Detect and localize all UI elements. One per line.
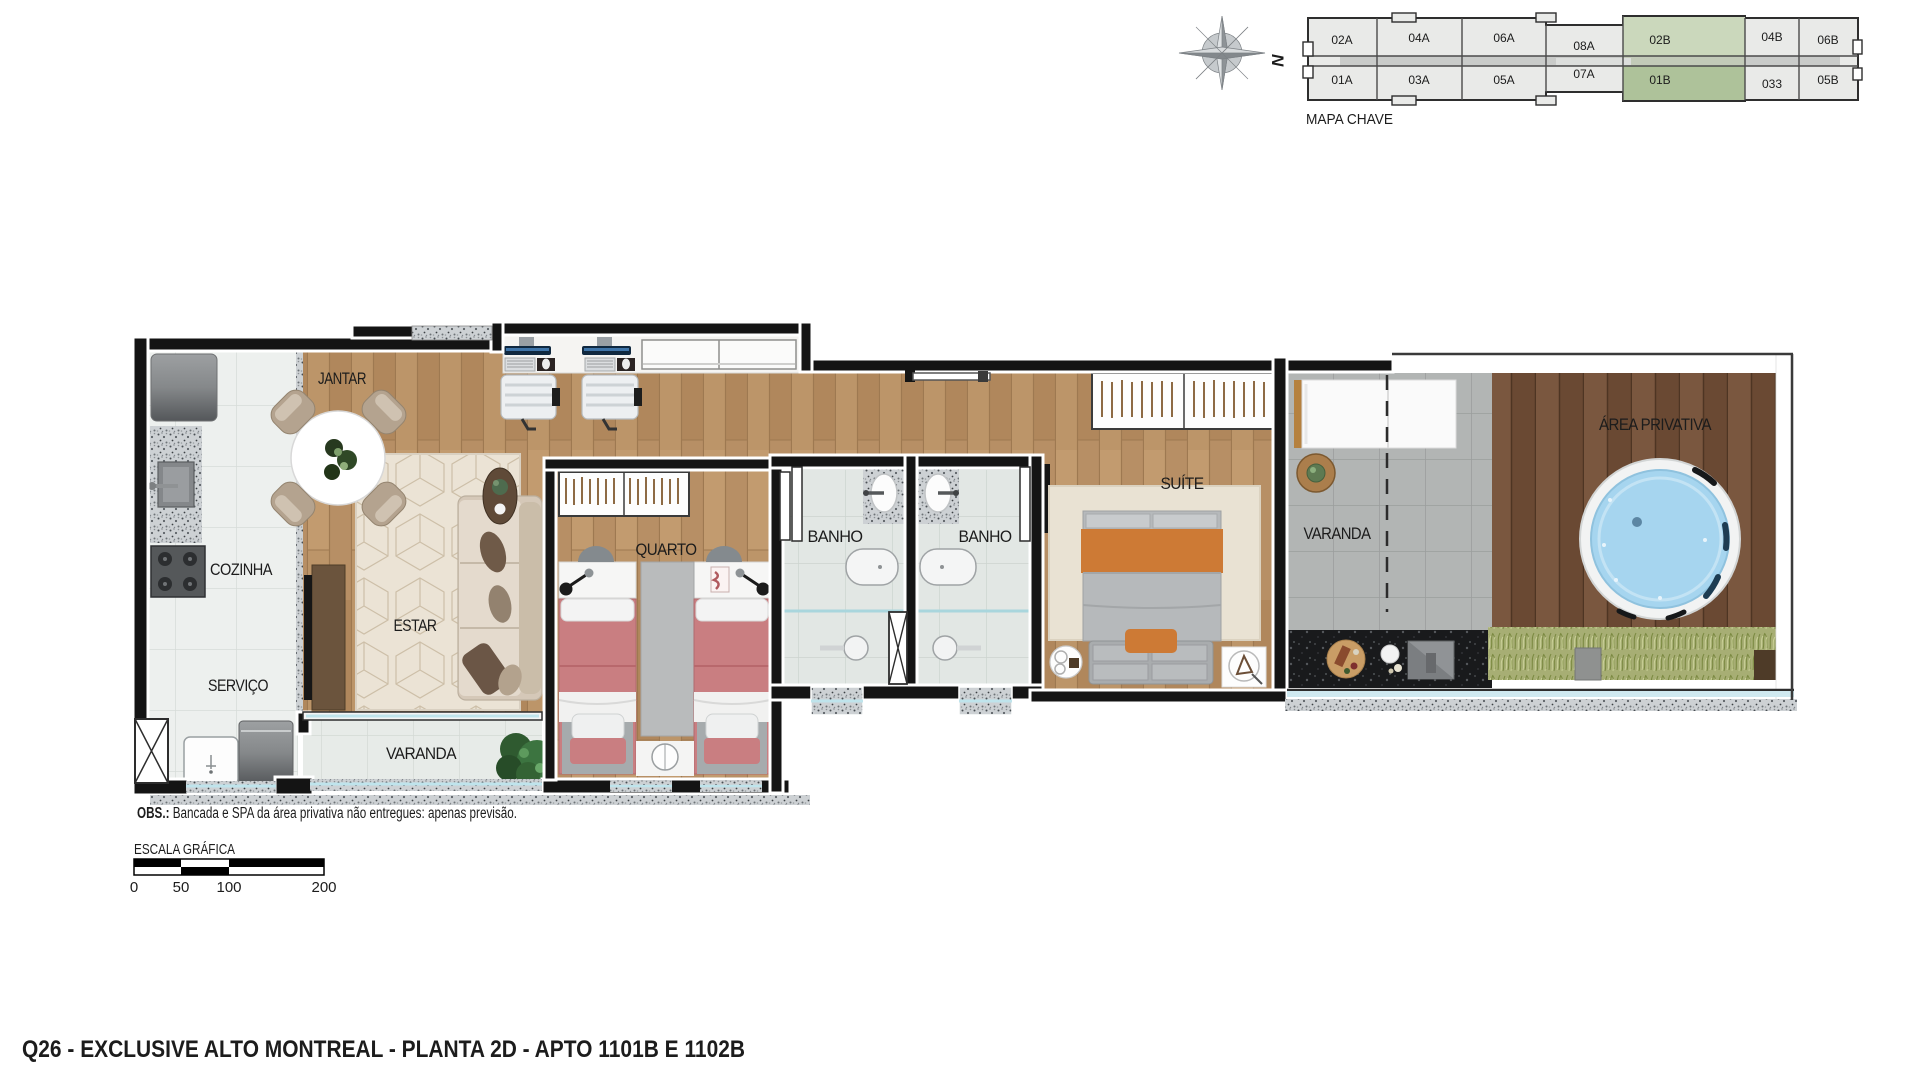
svg-text:03A: 03A [1408,73,1429,87]
svg-text:ESCALA GRÁFICA: ESCALA GRÁFICA [134,841,235,858]
svg-text:100: 100 [216,879,241,896]
svg-text:07A: 07A [1573,67,1594,81]
svg-text:06B: 06B [1817,33,1838,47]
svg-text:06A: 06A [1493,31,1514,45]
svg-text:200: 200 [311,879,336,896]
svg-text:BANHO: BANHO [808,527,863,546]
svg-text:0: 0 [130,879,138,896]
svg-text:02A: 02A [1331,33,1352,47]
svg-text:Q26 - EXCLUSIVE ALTO MONTREAL: Q26 - EXCLUSIVE ALTO MONTREAL - PLANTA 2… [22,1036,745,1063]
svg-text:SERVIÇO: SERVIÇO [208,676,268,695]
svg-text:01B: 01B [1649,73,1670,87]
svg-text:BANHO: BANHO [959,527,1012,546]
svg-text:04A: 04A [1408,31,1429,45]
svg-text:01A: 01A [1331,73,1352,87]
svg-text:COZINHA: COZINHA [210,560,273,579]
svg-text:ÁREA PRIVATIVA: ÁREA PRIVATIVA [1599,415,1712,434]
svg-text:02B: 02B [1649,33,1670,47]
svg-text:OBS.: Bancada e SPA da área pr: OBS.: Bancada e SPA da área privativa nã… [137,805,517,822]
svg-text:N: N [1268,54,1287,67]
svg-text:50: 50 [173,879,190,896]
svg-text:QUARTO: QUARTO [636,540,697,559]
svg-text:SUÍTE: SUÍTE [1161,474,1204,493]
svg-text:033: 033 [1762,77,1782,91]
svg-text:08A: 08A [1573,39,1594,53]
svg-text:05A: 05A [1493,73,1514,87]
svg-text:ESTAR: ESTAR [394,616,437,635]
svg-text:JANTAR: JANTAR [318,369,366,388]
svg-text:VARANDA: VARANDA [1304,524,1372,543]
svg-text:05B: 05B [1817,73,1838,87]
svg-text:MAPA CHAVE: MAPA CHAVE [1306,111,1393,128]
svg-text:04B: 04B [1761,30,1782,44]
svg-text:VARANDA: VARANDA [386,744,457,763]
